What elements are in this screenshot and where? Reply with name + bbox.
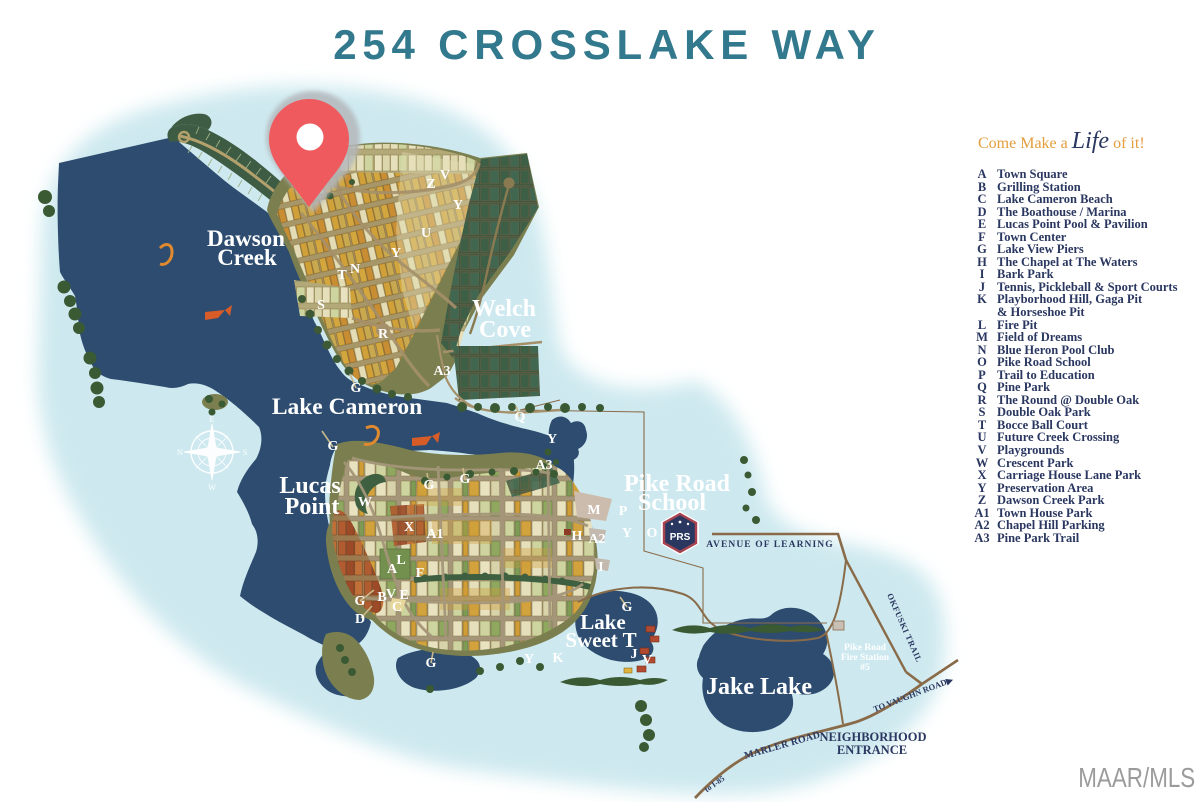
svg-text:V: V <box>642 653 652 668</box>
svg-text:ENTRANCE: ENTRANCE <box>837 743 907 757</box>
svg-text:N: N <box>177 447 183 457</box>
svg-text:S: S <box>317 298 325 313</box>
svg-text:L: L <box>396 553 405 568</box>
svg-text:AVENUE OF LEARNING: AVENUE OF LEARNING <box>706 540 833 550</box>
svg-text:G: G <box>622 600 633 615</box>
svg-text:Point: Point <box>285 494 340 520</box>
svg-text:T: T <box>337 268 347 283</box>
svg-text:X: X <box>404 520 414 535</box>
svg-text:D: D <box>355 612 365 627</box>
svg-text:G: G <box>355 594 366 609</box>
svg-text:Y: Y <box>453 198 463 213</box>
svg-text:Y: Y <box>391 246 401 261</box>
svg-text:E: E <box>209 414 214 424</box>
svg-text:Creek: Creek <box>217 245 277 270</box>
svg-text:G: G <box>424 478 435 493</box>
svg-text:I: I <box>598 560 603 575</box>
svg-text:Cove: Cove <box>479 317 531 343</box>
svg-text:PRS: PRS <box>670 532 691 543</box>
svg-text:A3: A3 <box>433 364 450 379</box>
svg-text:G: G <box>460 472 471 487</box>
svg-text:O: O <box>647 526 658 541</box>
svg-text:Y: Y <box>547 432 557 447</box>
svg-text:Q: Q <box>515 410 526 425</box>
svg-text:#5: #5 <box>860 663 870 673</box>
svg-text:K: K <box>553 651 564 666</box>
svg-text:S: S <box>243 447 248 457</box>
svg-text:C: C <box>392 600 402 615</box>
svg-text:A2: A2 <box>588 532 605 547</box>
svg-text:NEIGHBORHOOD: NEIGHBORHOOD <box>820 730 927 744</box>
svg-text:Lake Cameron: Lake Cameron <box>272 394 422 420</box>
svg-text:Y: Y <box>622 526 632 541</box>
svg-text:A: A <box>387 562 398 577</box>
svg-text:J: J <box>631 647 638 662</box>
svg-text:N: N <box>350 262 360 277</box>
svg-text:W: W <box>208 482 216 492</box>
svg-text:School: School <box>638 490 706 516</box>
svg-text:Jake Lake: Jake Lake <box>706 674 812 700</box>
svg-text:U: U <box>421 226 431 241</box>
svg-text:H: H <box>572 529 583 544</box>
svg-text:Z: Z <box>426 177 435 192</box>
svg-text:G: G <box>426 656 437 671</box>
svg-text:P: P <box>619 504 628 519</box>
svg-text:R: R <box>378 327 389 342</box>
svg-text:A3: A3 <box>535 458 552 473</box>
svg-text:G: G <box>351 381 362 396</box>
svg-text:Pike Road: Pike Road <box>844 643 887 653</box>
svg-text:A1: A1 <box>426 527 443 542</box>
svg-text:M: M <box>587 503 600 518</box>
svg-text:F: F <box>416 566 425 581</box>
svg-text:Fire Station: Fire Station <box>841 653 890 663</box>
svg-text:Y: Y <box>524 652 534 667</box>
svg-text:Sweet T: Sweet T <box>565 628 636 652</box>
svg-text:G: G <box>328 439 339 454</box>
svg-text:V: V <box>440 168 450 183</box>
svg-text:W: W <box>358 495 372 510</box>
